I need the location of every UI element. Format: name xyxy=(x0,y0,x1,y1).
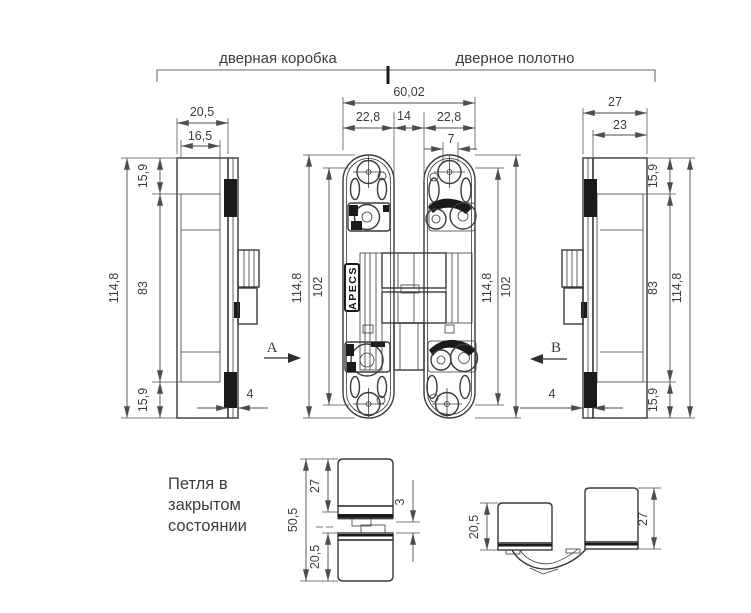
door-frame-label: дверная коробка xyxy=(219,50,337,67)
dim-front-right-total-height: 114,8 xyxy=(480,273,494,303)
front-view: APECS 60,02 22,8 14 22,8 7 114,8 102 xyxy=(290,85,521,418)
dim-open-right-depth: 27 xyxy=(636,512,650,526)
dim-leaf-inner-width: 23 xyxy=(613,118,627,132)
section-a-label: A xyxy=(267,340,278,356)
dim-front-center-gap: 14 xyxy=(397,109,411,123)
dim-closed-total-depth: 50,5 xyxy=(286,508,300,532)
dim-leaf-total-height: 114,8 xyxy=(670,273,684,303)
dim-leaf-plate-thickness: 4 xyxy=(549,387,556,401)
dim-front-total-width: 60,02 xyxy=(393,85,424,99)
frame-side-knuckle xyxy=(238,250,259,324)
front-right-plate xyxy=(424,155,478,418)
brand-label: APECS xyxy=(347,266,359,310)
leaf-side-knuckle xyxy=(562,250,583,324)
dim-front-right-plate-width: 22,8 xyxy=(437,110,461,124)
open-hinge-view: 20,5 27 xyxy=(467,488,661,574)
brand-plate: APECS xyxy=(345,264,359,311)
closed-state-caption: Петля в закрытом состоянии xyxy=(168,475,247,535)
dim-closed-gap: 3 xyxy=(393,498,407,505)
dim-front-left-plate-width: 22,8 xyxy=(356,110,380,124)
dim-leaf-body-height: 83 xyxy=(646,281,660,295)
dim-front-left-inner-height: 102 xyxy=(311,277,325,298)
dim-frame-plate-thickness: 4 xyxy=(247,387,254,401)
dim-front-left-total-height: 114,8 xyxy=(290,273,304,303)
dim-frame-width: 20,5 xyxy=(190,105,214,119)
hinge-technical-drawing: дверная коробка дверное полотно 20,5 xyxy=(0,0,751,613)
section-arrow-a: A xyxy=(264,340,301,363)
dim-frame-top-offset: 15,9 xyxy=(136,164,150,188)
caption-line-2: закрытом xyxy=(168,496,241,514)
door-leaf-label: дверное полотно xyxy=(456,50,575,67)
dim-frame-inner-width: 16,5 xyxy=(188,129,212,143)
dim-frame-bottom-offset: 15,9 xyxy=(136,388,150,412)
caption-line-1: Петля в xyxy=(168,475,228,493)
dim-closed-bottom-depth: 20,5 xyxy=(308,545,322,569)
hinge-drawing-page: дверная коробка дверное полотно 20,5 xyxy=(0,0,751,613)
dim-leaf-width: 27 xyxy=(608,95,622,109)
section-b-label: B xyxy=(551,340,561,356)
caption-line-3: состоянии xyxy=(168,517,247,535)
leaf-side-body xyxy=(581,158,647,418)
frame-side-view: 20,5 16,5 114,8 15,9 83 15,9 4 A xyxy=(107,105,301,418)
section-arrow-b: B xyxy=(530,340,567,364)
closed-hinge-view: 50,5 27 20,5 3 xyxy=(286,459,420,581)
leaf-side-view: 27 23 15,9 83 15,9 114,8 4 B xyxy=(520,95,695,418)
dim-front-hole-pitch: 7 xyxy=(448,132,455,146)
dim-frame-total-height: 114,8 xyxy=(107,273,121,303)
front-arm-assembly xyxy=(360,253,472,370)
dim-leaf-top-offset: 15,9 xyxy=(646,164,660,188)
open-hinge-body xyxy=(498,488,638,574)
dim-frame-body-height: 83 xyxy=(136,281,150,295)
dim-closed-top-depth: 27 xyxy=(308,479,322,493)
frame-side-body xyxy=(177,158,240,418)
top-bracket: дверная коробка дверное полотно xyxy=(157,50,655,84)
dim-leaf-bottom-offset: 15,9 xyxy=(646,388,660,412)
dim-open-left-depth: 20,5 xyxy=(467,515,481,539)
dim-front-right-inner-height: 102 xyxy=(499,277,513,298)
